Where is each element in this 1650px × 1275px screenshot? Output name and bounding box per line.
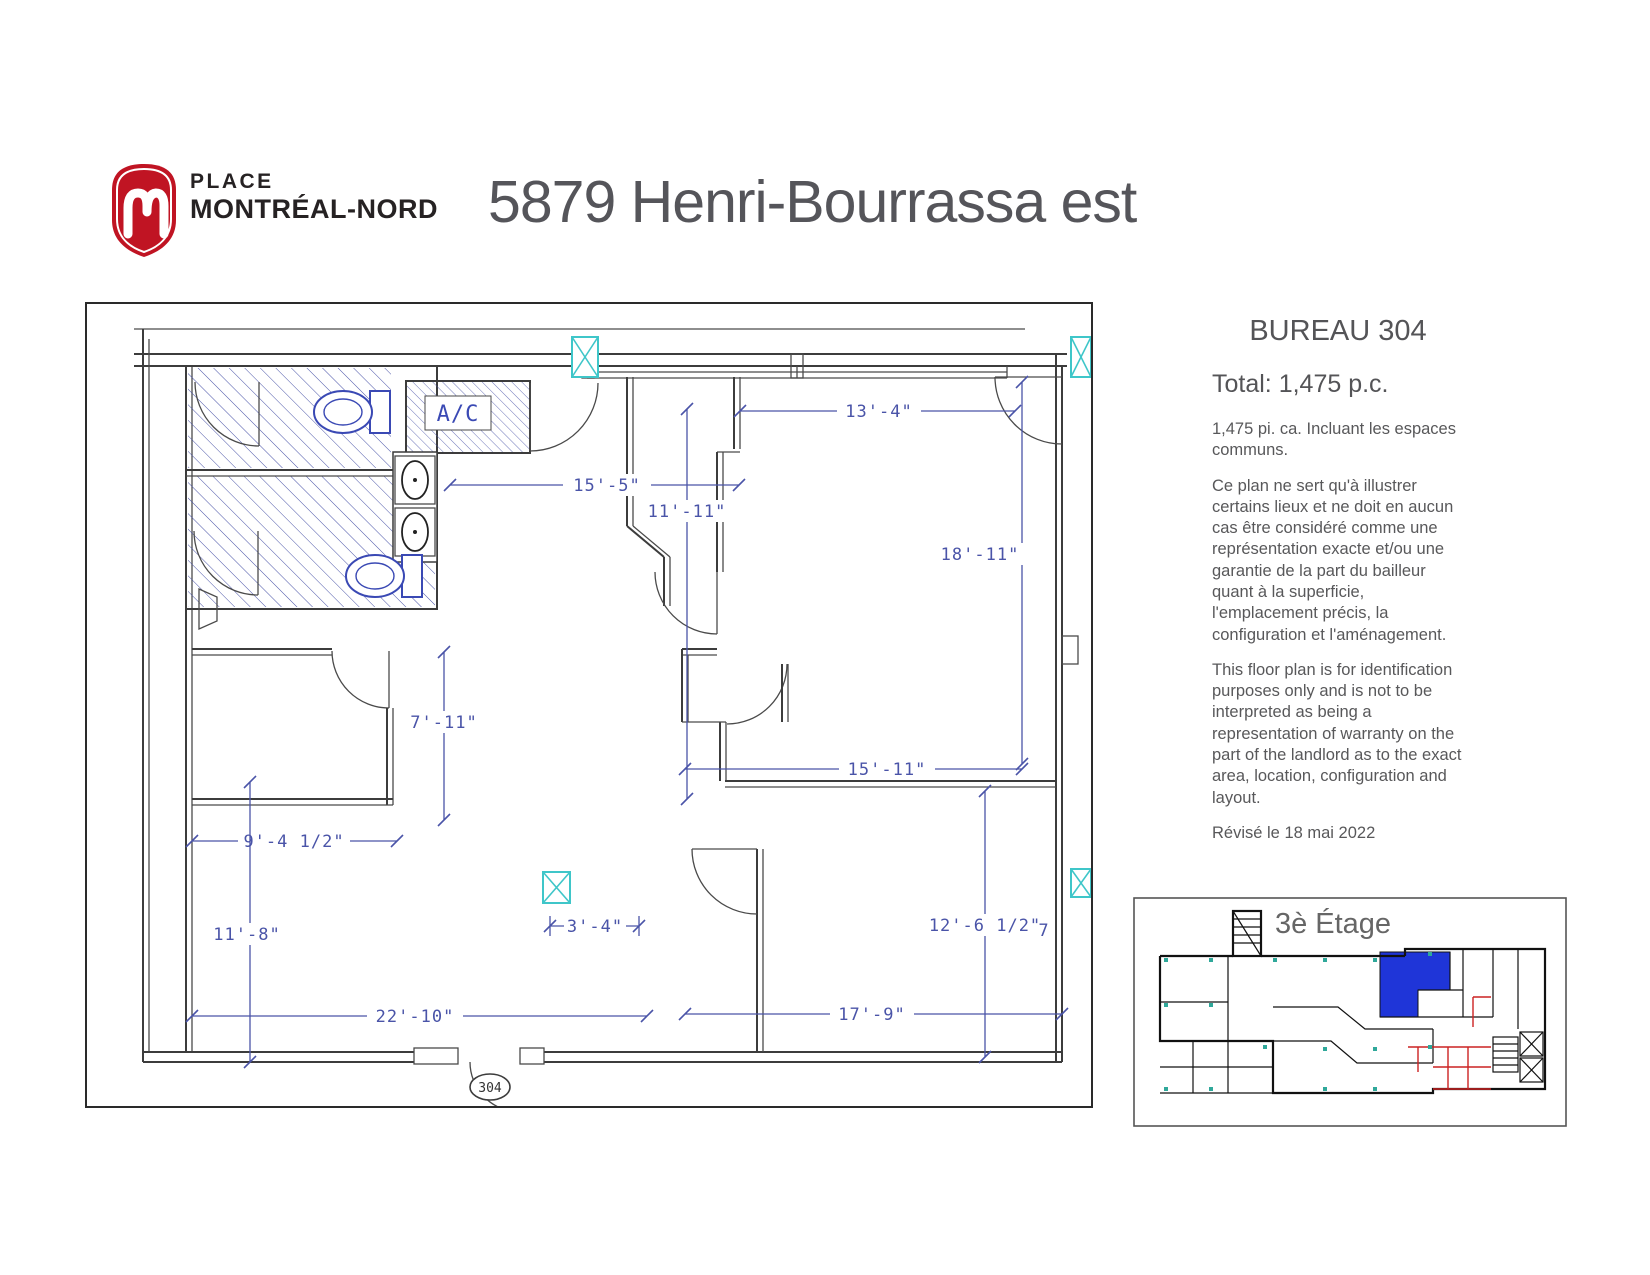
page: { "header": { "logo": { "m": "m", "line1… <box>0 0 1650 1275</box>
dimension-label: 15'-5" <box>573 476 640 496</box>
door-arc <box>332 651 389 708</box>
total-area: Total: 1,475 p.c. <box>1212 370 1466 399</box>
header: PLACE MONTRÉAL-NORD 5879 Henri-Bourrassa… <box>0 0 1650 290</box>
floor-plan-drawing: A/C <box>87 304 1091 1106</box>
logo-text-place: PLACE <box>190 170 274 194</box>
dimension-label: 12'-6 1/2" <box>929 916 1041 936</box>
dimension-label: 9'-4 1/2" <box>243 832 344 852</box>
dimension-label: 3'-4" <box>567 917 623 937</box>
page-title: 5879 Henri-Bourrassa est <box>488 168 1136 236</box>
floor-plan-panel: A/C <box>85 302 1093 1108</box>
dimension-label: 17'-9" <box>838 1005 905 1025</box>
dimension-label: 7 <box>1038 921 1049 941</box>
floor-overview-minimap: 3è Étage <box>1133 897 1567 1132</box>
logo-text-montreal-nord: MONTRÉAL-NORD <box>190 194 438 225</box>
column-icon <box>572 337 598 377</box>
door-arc <box>692 849 757 914</box>
minimap-drawing: 3è Étage <box>1133 897 1567 1127</box>
dimension-label: 18'-11" <box>941 545 1020 565</box>
toilet-icon <box>346 555 422 597</box>
column-icon <box>1071 337 1091 377</box>
toilet-icon <box>314 391 390 433</box>
logo-shield-icon <box>107 162 181 258</box>
info-sidebar: BUREAU 304 Total: 1,475 p.c. 1,475 pi. c… <box>1210 315 1466 858</box>
suite-title: BUREAU 304 <box>1210 315 1466 348</box>
room-number-label: 304 <box>478 1081 502 1096</box>
disclaimer-english: This floor plan is for identification pu… <box>1212 660 1466 809</box>
area-note: 1,475 pi. ca. Incluant les espaces commu… <box>1212 419 1466 462</box>
ac-door-arc <box>530 383 598 451</box>
revision-date: Révisé le 18 mai 2022 <box>1212 823 1466 844</box>
door-arc <box>727 664 787 724</box>
dimension-label: 15'-11" <box>848 760 927 780</box>
dimension-label: 7'-11" <box>410 713 477 733</box>
dimension-label: 22'-10" <box>376 1007 455 1027</box>
column-icon <box>543 872 570 903</box>
column-markers <box>543 337 1091 903</box>
minimap-title: 3è Étage <box>1275 907 1391 940</box>
dimension-label: 11'-8" <box>213 925 280 945</box>
washroom-block: A/C <box>186 366 598 629</box>
ac-label: A/C <box>437 402 480 427</box>
dimension-label: 11'-11" <box>648 502 727 522</box>
disclaimer-french: Ce plan ne sert qu'à illustrer certains … <box>1212 476 1466 646</box>
column-icon <box>1071 869 1091 897</box>
dimension-label: 13'-4" <box>845 402 912 422</box>
